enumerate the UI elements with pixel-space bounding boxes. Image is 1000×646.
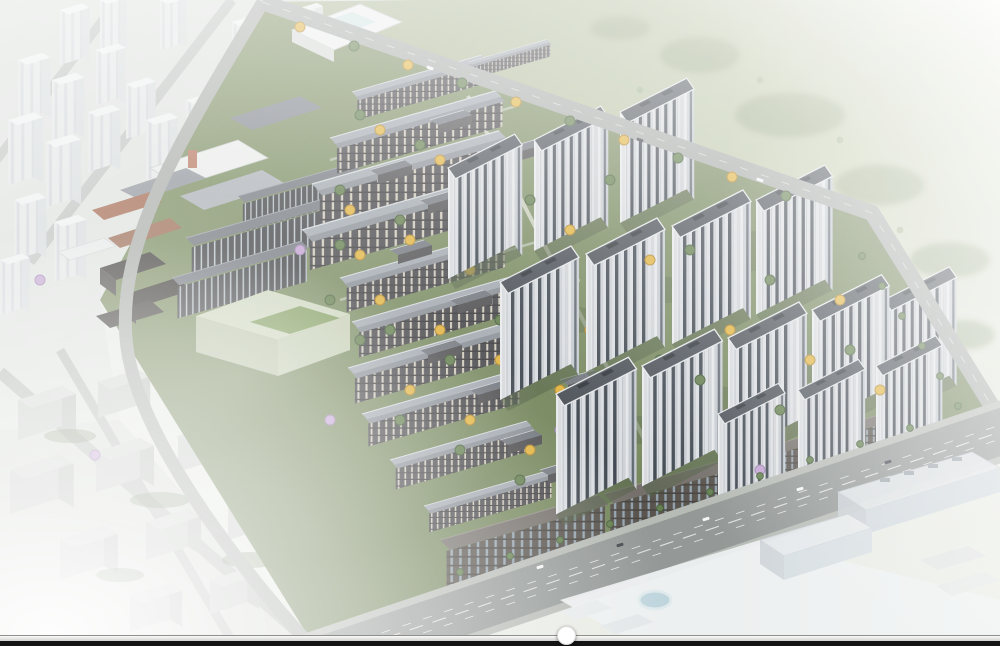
fog-overlays [0,0,1000,646]
aerial-rendering-image [0,0,1000,646]
scrubber-thumb[interactable] [557,626,576,645]
rendering-viewport: Bird's-eye masterplan rendering of a lar… [0,0,1000,646]
bottom-black-bar [0,641,1000,646]
